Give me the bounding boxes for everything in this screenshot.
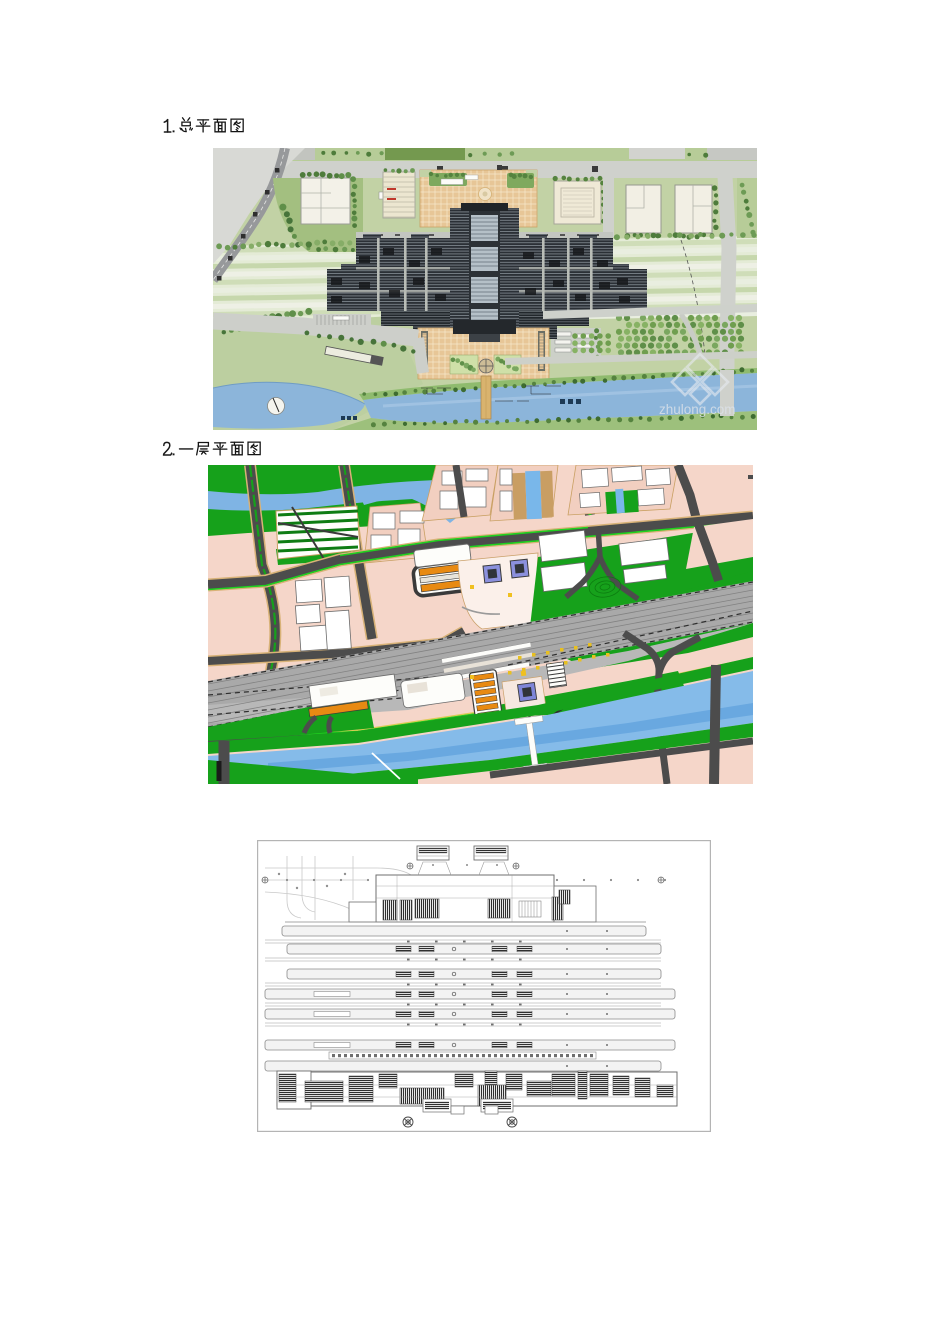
- svg-text:zhulong.com: zhulong.com: [659, 402, 736, 417]
